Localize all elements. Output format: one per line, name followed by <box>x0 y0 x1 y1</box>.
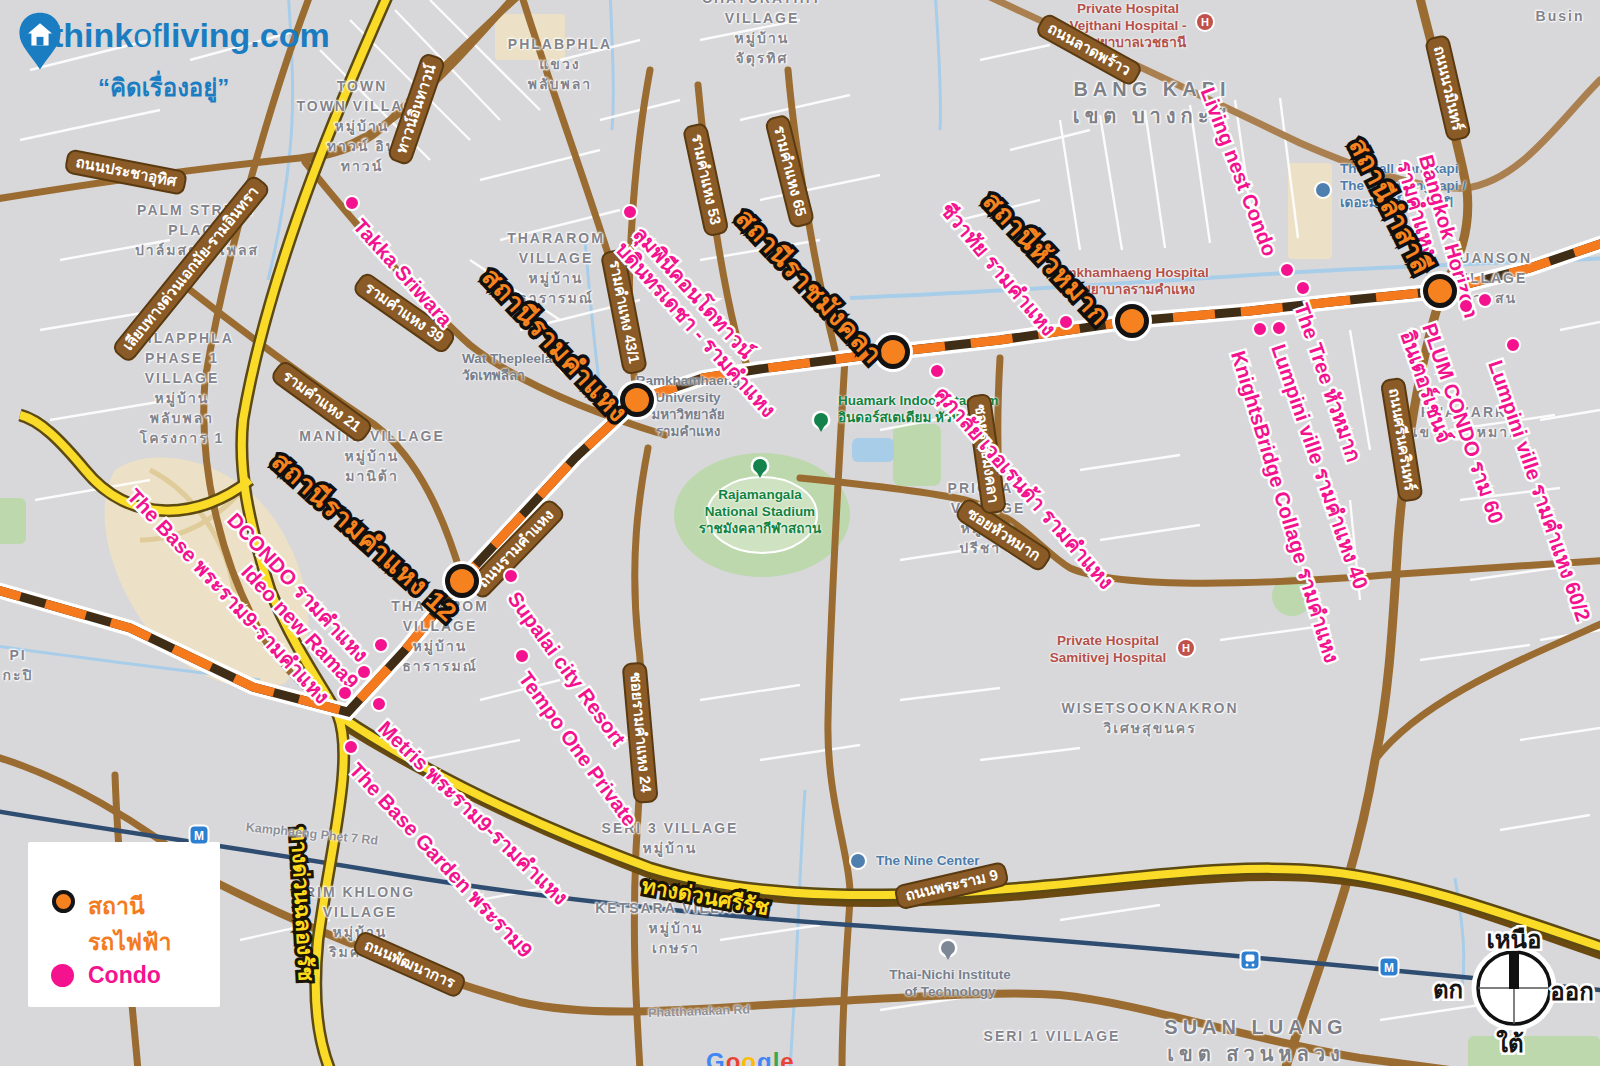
area-label-line: VILLAGE <box>305 902 415 922</box>
area-label: WISETSOOKNAKRONวิเศษสุขนคร <box>1062 698 1239 738</box>
area-label-line: กะปิ <box>3 665 34 685</box>
area-label-line: หมู่บ้าน <box>595 918 757 938</box>
area-label-line: PHASE 1 <box>130 348 234 368</box>
area-label-line: WISETSOOKNAKRON <box>1062 698 1239 718</box>
map-canvas[interactable]: thinkofliving.com “คิดเรื่องอยู่” สถานีร… <box>0 0 1600 1066</box>
compass-label-west: ตกตก <box>1433 970 1463 1009</box>
train-icon <box>1242 952 1259 969</box>
area-label-line: MANITA VILLAGE <box>299 426 444 446</box>
site-name-living: living.com <box>162 16 330 54</box>
condo-marker[interactable] <box>503 568 519 584</box>
google-watermark-letter: g <box>757 1048 773 1066</box>
poi-icon <box>1316 183 1330 197</box>
area-label-line: จัตุรทิศ <box>702 48 822 68</box>
google-watermark-letter: o <box>741 1048 757 1066</box>
condo-marker[interactable] <box>1271 320 1287 336</box>
poi-icon <box>851 854 865 868</box>
area-label-line: เขต สวนหลวง <box>1164 1041 1347 1066</box>
poi-icon <box>941 941 955 955</box>
google-watermark-letter: e <box>780 1048 794 1066</box>
area-label: PHLABPHLAแขวงพลับพลา <box>508 34 612 94</box>
area-label-line: THARAROM <box>507 228 605 248</box>
condo-marker[interactable] <box>514 648 530 664</box>
poi-icon <box>814 413 828 427</box>
compass-label-east: ออกออก <box>1550 972 1593 1011</box>
area-label-line: PI <box>3 645 34 665</box>
poi-label-line: Vejthani Hospital - <box>1069 17 1186 34</box>
condo-marker[interactable] <box>1295 280 1311 296</box>
poi-label-line: Private Hospital <box>1069 0 1186 17</box>
poi-label-line: The Nine Center <box>876 852 980 869</box>
poi-label-line: วัดเทพลีลา <box>462 367 552 384</box>
poi-label-line: รามคำแหง <box>636 423 740 440</box>
compass-label-north: เหนือเหนือ <box>1487 920 1542 959</box>
metro-icon: M <box>1381 959 1398 976</box>
metro-icon: M <box>191 827 208 844</box>
condo-marker[interactable] <box>1279 262 1295 278</box>
condo-marker[interactable] <box>344 195 360 211</box>
poi-label-line: Private Hospital <box>1050 632 1166 649</box>
poi-label: The Nine Center <box>876 852 980 869</box>
area-label-line: VILLAGE <box>507 248 605 268</box>
poi-label-line: Samitivej Hospital <box>1050 649 1166 666</box>
area-label-line: PHLABPHLA <box>508 34 612 54</box>
condo-marker[interactable] <box>1505 337 1521 353</box>
area-label-line: โครงการ 1 <box>130 428 234 448</box>
area-label: Busin <box>1536 6 1585 26</box>
area-label-line: CHATURATHIT <box>702 0 822 8</box>
area-label-line: แขวง <box>508 54 612 74</box>
area-label-line: หมู่บ้าน <box>299 446 444 466</box>
area-label-line: พลับพลา <box>130 408 234 428</box>
area-label-line: SUAN LUANG <box>1164 1014 1347 1041</box>
poi-label-line: Thai-Nichi Institute <box>889 966 1011 983</box>
area-label-line: หมู่บ้าน <box>602 838 739 858</box>
road-rama9-frontage <box>338 722 1600 958</box>
station-marker[interactable] <box>1423 274 1457 308</box>
poi-icon: H <box>1197 14 1213 30</box>
poi-label: RajamangalaNational Stadiumราชมังคลากีฬา… <box>699 486 822 537</box>
legend-condo-label: Condo <box>88 962 161 989</box>
poi-label-line: National Stadium <box>699 503 822 520</box>
poi-label: Private HospitalSamitivej Hospital <box>1050 632 1166 666</box>
poi-label-line: Wat Thepleela <box>462 350 552 367</box>
area-label-line: VILLAGE <box>130 368 234 388</box>
area-label-line: หมู่บ้าน <box>130 388 234 408</box>
area-label-line: พลับพลา <box>508 74 612 94</box>
area-label-line: หมู่บ้าน <box>702 28 822 48</box>
area-label: PHLAPPHLAPHASE 1VILLAGEหมู่บ้านพลับพลาโค… <box>130 328 234 448</box>
expressway-si-rat <box>338 715 1600 950</box>
condo-marker[interactable] <box>373 637 389 653</box>
area-label-line: ธารารมณ์ <box>391 656 489 676</box>
area-label-line: เกษรา <box>595 938 757 958</box>
site-name: thinkofliving.com <box>52 16 330 55</box>
station-marker[interactable] <box>1115 304 1149 338</box>
legend-station-label: สถานีรถไฟฟ้า <box>88 888 220 960</box>
site-tagline: “คิดเรื่องอยู่” <box>98 68 229 107</box>
site-name-of: of <box>133 16 161 54</box>
condo-marker[interactable] <box>622 204 638 220</box>
site-name-think: think <box>52 16 133 54</box>
poi-label-line: Rajamangala <box>699 486 822 503</box>
area-label-line: วิเศษสุขนคร <box>1062 718 1239 738</box>
condo-marker[interactable] <box>343 739 359 755</box>
area-label: CHATURATHITVILLAGEหมู่บ้านจัตุรทิศ <box>702 0 822 68</box>
area-label-line: SERI 1 VILLAGE <box>984 1026 1121 1046</box>
condo-marker[interactable] <box>371 696 387 712</box>
google-watermark-letter: G <box>706 1048 726 1066</box>
google-watermark: Google <box>706 1048 795 1066</box>
poi-icon <box>753 459 767 473</box>
area-label-line: VILLAGE <box>702 8 822 28</box>
condo-marker[interactable] <box>1458 298 1474 314</box>
legend: สถานีรถไฟฟ้า Condo <box>28 842 220 1007</box>
poi-label-line: of Technology <box>889 983 1011 1000</box>
poi-label: Thai-Nichi Instituteof Technology <box>889 966 1011 1000</box>
area-label: SERI 1 VILLAGE <box>984 1026 1121 1046</box>
google-watermark-letter: o <box>726 1048 742 1066</box>
legend-condo-swatch <box>51 964 74 987</box>
condo-marker[interactable] <box>1058 314 1074 330</box>
area-label-line: หมู่บ้าน <box>391 636 489 656</box>
compass-label-south: ใต้ใต้ <box>1496 1024 1523 1063</box>
legend-station-swatch <box>52 890 75 913</box>
poi-label: Wat Thepleelaวัดเทพลีลา <box>462 350 552 384</box>
area-label-line: RIM KHLONG <box>305 882 415 902</box>
area-label-line: Busin <box>1536 6 1585 26</box>
condo-marker[interactable] <box>929 363 945 379</box>
area-label-line: หมู่บ้าน <box>507 268 605 288</box>
poi-icon: H <box>1178 640 1194 656</box>
area-label: SUAN LUANGเขต สวนหลวง <box>1164 1014 1347 1066</box>
poi-label-line: ราชมังคลากีฬาสถาน <box>699 520 822 537</box>
area-label: PIกะปิ <box>3 645 34 685</box>
condo-marker[interactable] <box>1252 321 1268 337</box>
condo-marker[interactable] <box>337 685 353 701</box>
